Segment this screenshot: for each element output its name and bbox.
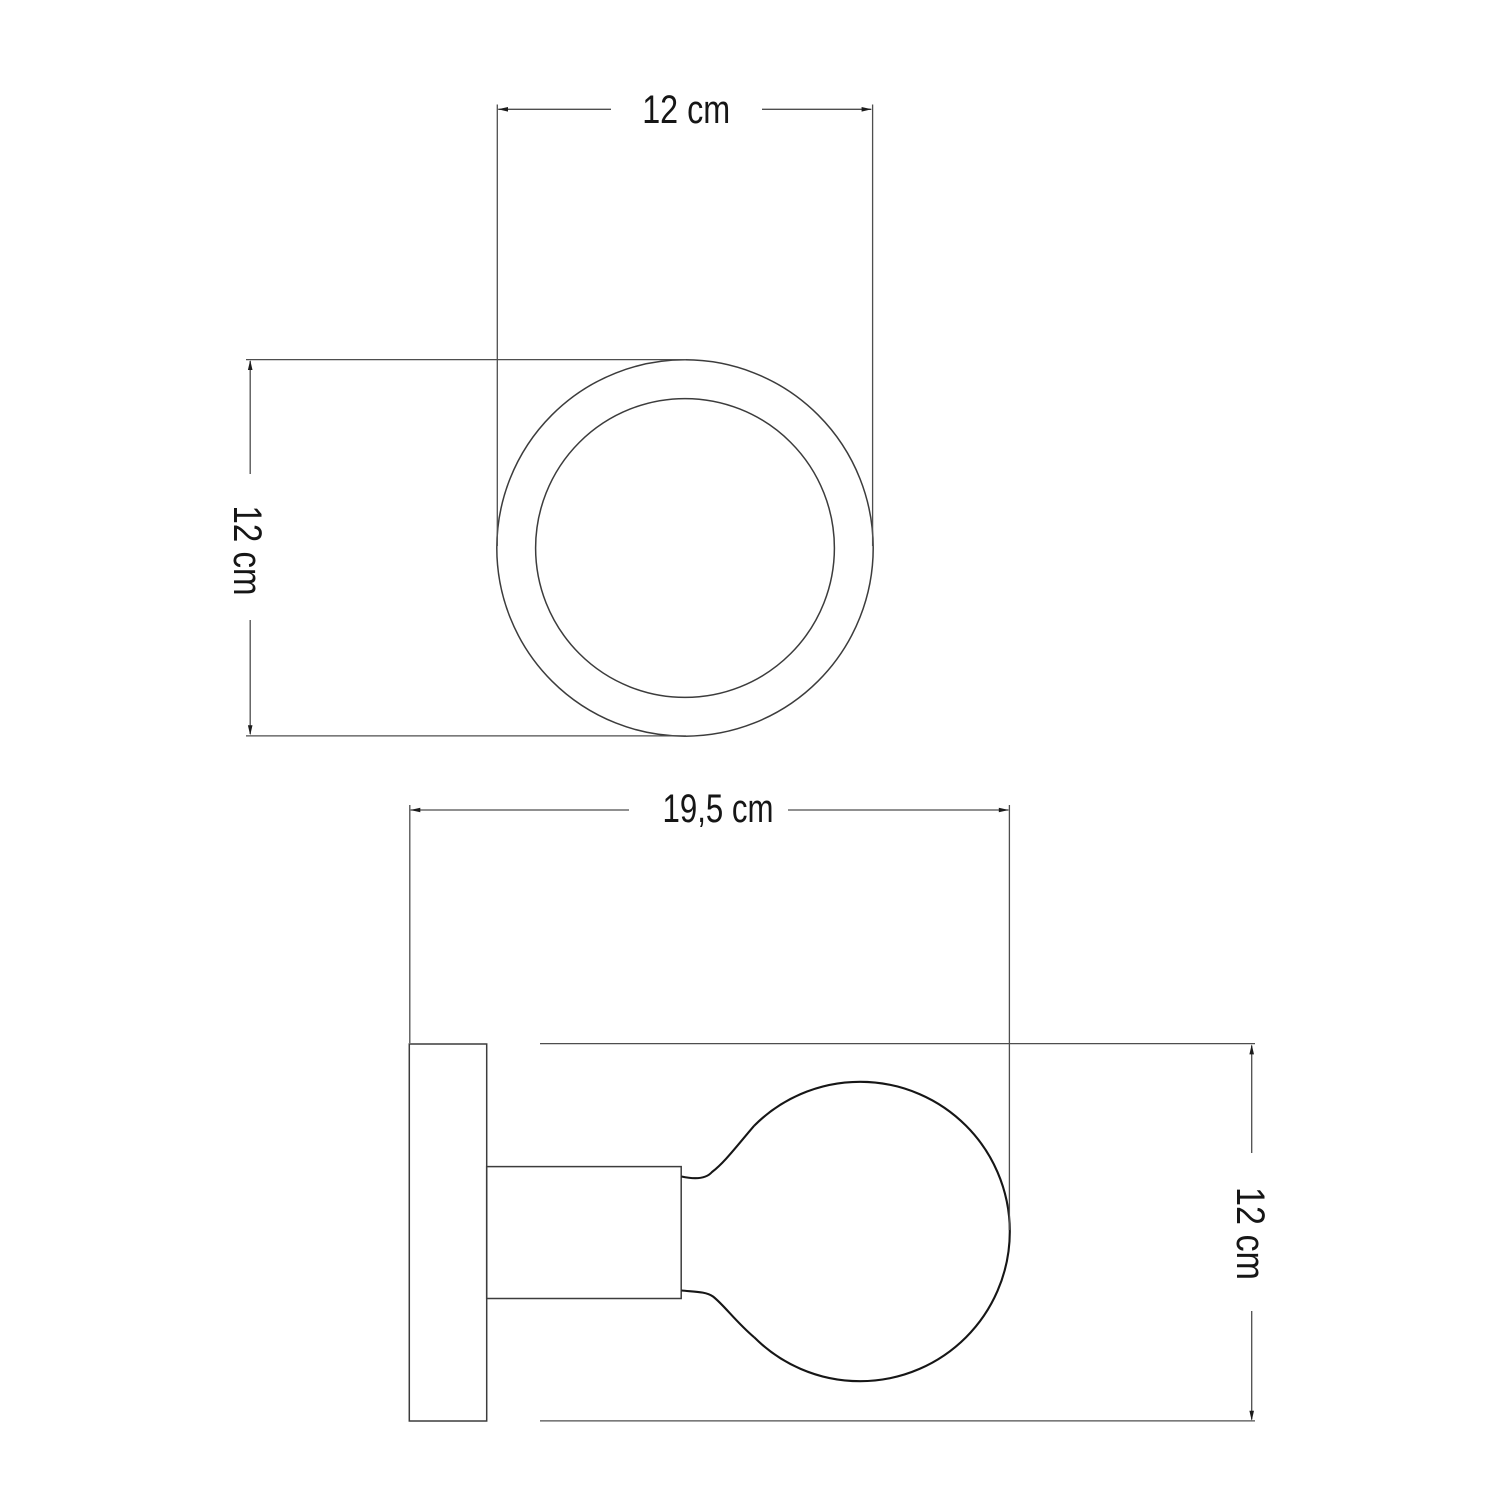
svg-text:12 cm: 12 cm [225,506,269,596]
svg-text:12 cm: 12 cm [642,88,730,132]
svg-text:12 cm: 12 cm [1228,1187,1272,1280]
svg-text:19,5 cm: 19,5 cm [663,787,774,831]
